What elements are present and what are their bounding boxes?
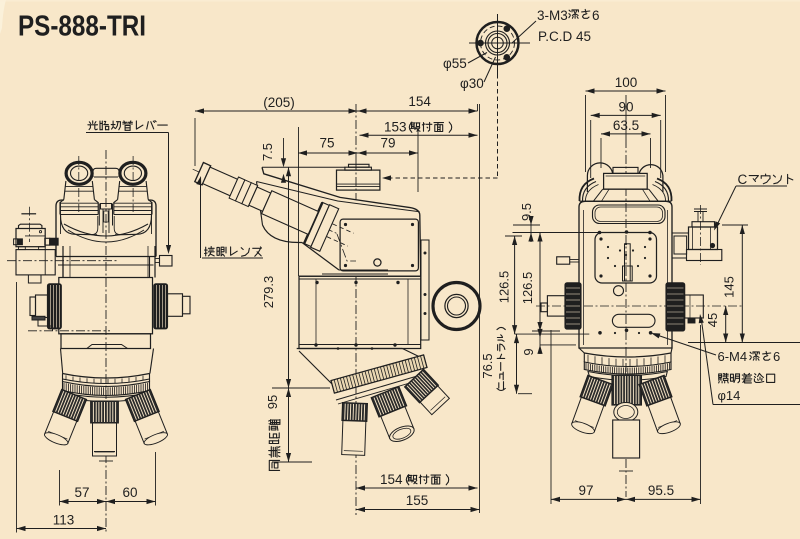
- svg-text:6: 6: [773, 349, 780, 364]
- svg-text:PS-888-TRI: PS-888-TRI: [18, 11, 146, 43]
- svg-text:95: 95: [265, 395, 280, 409]
- svg-text:76.5: 76.5: [480, 353, 495, 378]
- svg-text:97: 97: [578, 483, 593, 498]
- svg-text:145: 145: [722, 276, 737, 298]
- svg-text:90: 90: [618, 100, 633, 115]
- svg-text:φ55: φ55: [443, 56, 467, 71]
- svg-text:126.5: 126.5: [497, 271, 512, 304]
- svg-text:9: 9: [521, 348, 536, 355]
- svg-text:6: 6: [592, 8, 600, 23]
- svg-text:153: 153: [384, 120, 407, 135]
- svg-text:154: 154: [380, 472, 403, 487]
- svg-text:63.5: 63.5: [613, 118, 639, 133]
- svg-text:60: 60: [122, 485, 137, 500]
- svg-text:279.3: 279.3: [261, 276, 276, 309]
- svg-text:φ30: φ30: [460, 76, 484, 91]
- svg-text:φ14: φ14: [718, 388, 741, 403]
- svg-text:100: 100: [615, 75, 638, 90]
- svg-text:95.5: 95.5: [648, 483, 674, 498]
- svg-text:57: 57: [74, 485, 89, 500]
- svg-text:113: 113: [53, 513, 75, 528]
- svg-text:155: 155: [406, 493, 429, 508]
- svg-text:154: 154: [408, 94, 431, 109]
- svg-text:C: C: [738, 172, 748, 187]
- svg-text:7.5: 7.5: [260, 143, 275, 161]
- svg-text:6-M4: 6-M4: [718, 349, 748, 364]
- svg-text:(205): (205): [263, 95, 295, 110]
- svg-text:3-M3: 3-M3: [537, 8, 568, 23]
- svg-text:9.5: 9.5: [519, 203, 534, 221]
- svg-text:45: 45: [705, 313, 720, 327]
- svg-text:75: 75: [319, 136, 334, 151]
- svg-text:P.C.D 45: P.C.D 45: [538, 29, 591, 44]
- svg-text:79: 79: [380, 136, 395, 151]
- svg-text:126.5: 126.5: [520, 272, 535, 305]
